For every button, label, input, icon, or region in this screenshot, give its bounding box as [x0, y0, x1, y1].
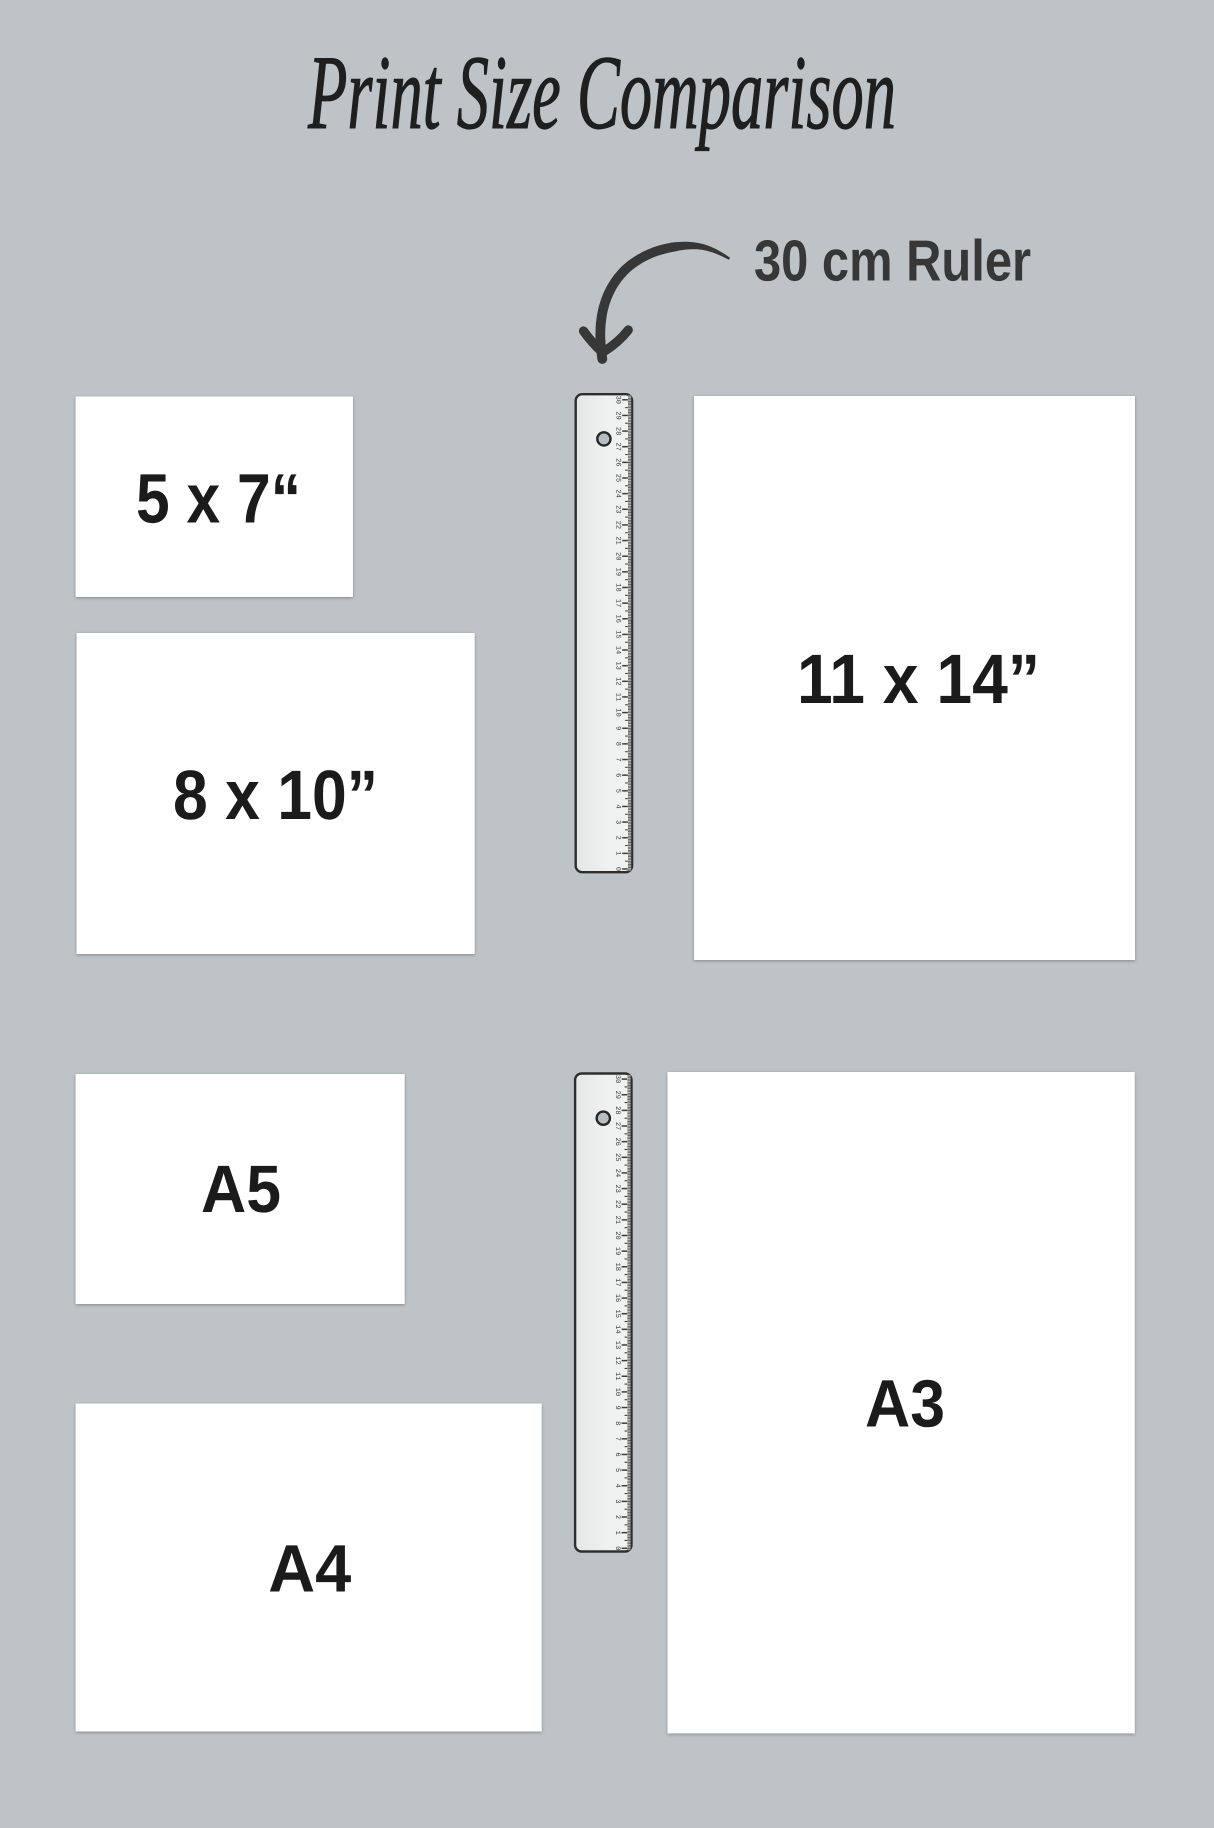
svg-text:Print Size Comparison: Print Size Comparison	[307, 34, 896, 151]
svg-text:A4: A4	[268, 1532, 351, 1607]
svg-text:11 x 14”: 11 x 14”	[797, 640, 1040, 718]
svg-text:8 x 10”: 8 x 10”	[173, 756, 378, 834]
svg-text:A5: A5	[201, 1152, 281, 1227]
svg-text:A3: A3	[865, 1367, 945, 1442]
svg-text:30 cm Ruler: 30 cm Ruler	[754, 229, 1031, 294]
svg-text:5 x 7“: 5 x 7“	[136, 460, 301, 538]
